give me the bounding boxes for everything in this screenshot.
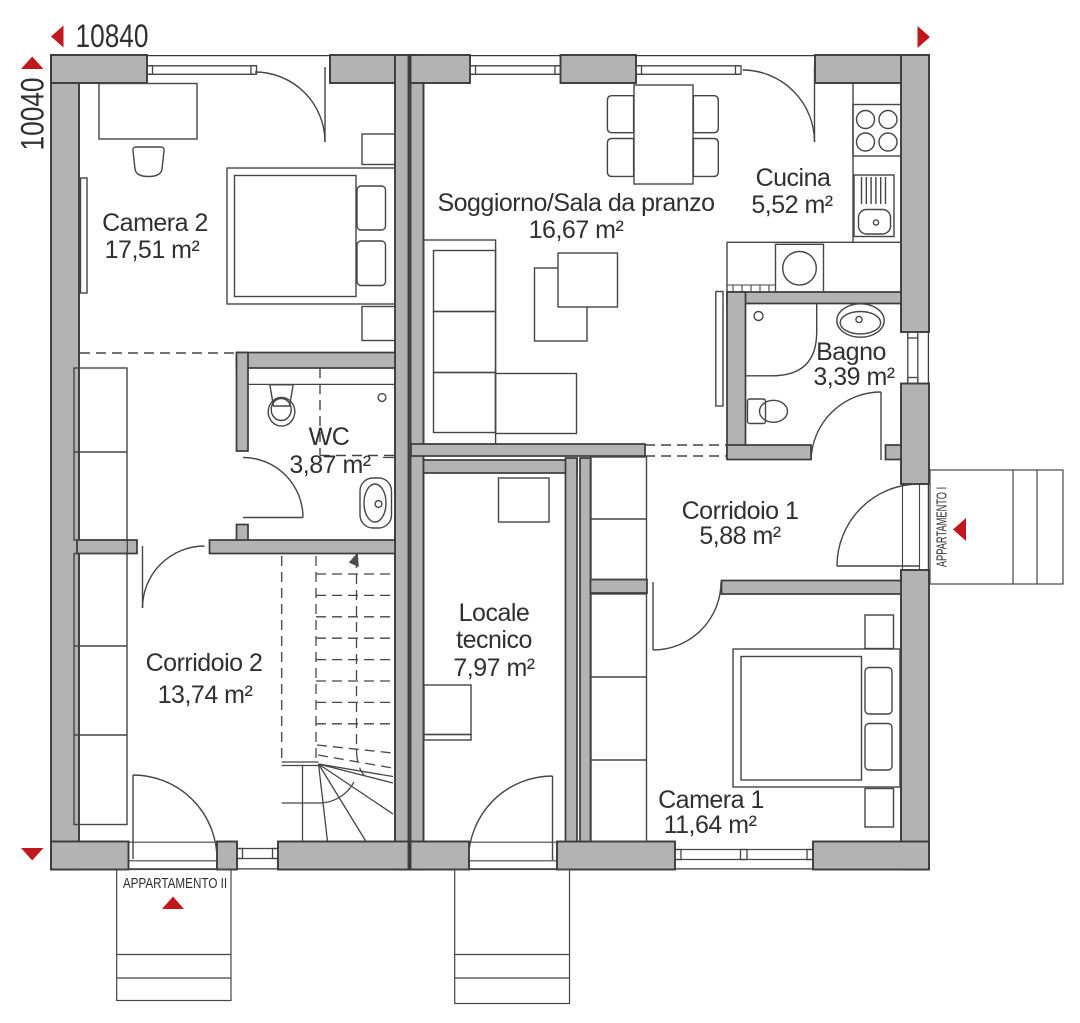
svg-text:10040: 10040	[16, 78, 51, 151]
svg-text:tecnico: tecnico	[456, 626, 532, 654]
svg-text:APPARTAMENTO I: APPARTAMENTO I	[933, 487, 950, 567]
svg-text:10840: 10840	[76, 20, 149, 55]
svg-text:Cucina: Cucina	[756, 164, 831, 192]
svg-text:Locale: Locale	[459, 599, 530, 627]
svg-text:Bagno: Bagno	[816, 338, 886, 366]
svg-text:13,74 m²: 13,74 m²	[158, 681, 253, 709]
svg-text:Camera 1: Camera 1	[658, 786, 764, 814]
svg-text:WC: WC	[309, 423, 350, 451]
svg-text:16,67 m²: 16,67 m²	[529, 216, 624, 244]
svg-text:17,51 m²: 17,51 m²	[105, 236, 200, 264]
svg-text:7,97 m²: 7,97 m²	[453, 654, 534, 682]
svg-text:11,64 m²: 11,64 m²	[664, 811, 757, 839]
svg-text:Soggiorno/Sala da pranzo: Soggiorno/Sala da pranzo	[437, 189, 714, 217]
svg-text:5,88 m²: 5,88 m²	[699, 522, 780, 550]
svg-text:Corridoio 2: Corridoio 2	[146, 649, 263, 677]
svg-text:Camera 2: Camera 2	[102, 209, 208, 237]
svg-text:5,52 m²: 5,52 m²	[751, 191, 832, 219]
svg-text:3,87 m²: 3,87 m²	[289, 451, 370, 479]
svg-text:APPARTAMENTO II: APPARTAMENTO II	[123, 875, 227, 892]
svg-text:3,39 m²: 3,39 m²	[813, 363, 894, 391]
svg-text:Corridoio 1: Corridoio 1	[682, 497, 799, 525]
